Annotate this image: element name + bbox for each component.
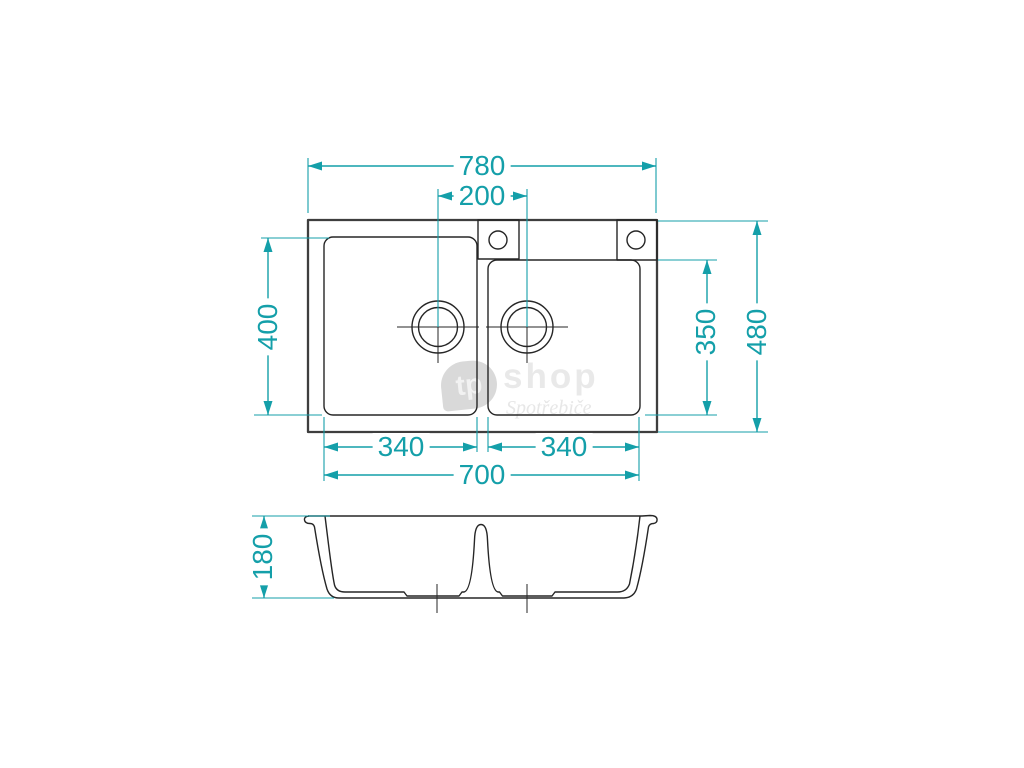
side-outer-profile [304,516,657,599]
arrow-350-top [703,260,712,274]
arrow-700-right [625,471,639,480]
arrow-340L-left [324,443,338,452]
dim-left-bowl-length: 400 [254,299,282,356]
arrow-180-bottom [260,584,269,598]
dim-overall-width: 780 [454,152,511,180]
arrow-340L-right [463,443,477,452]
arrow-340R-left [488,443,502,452]
arrow-480-top [753,221,762,235]
faucet-tab-left [478,220,519,259]
arrow-350-bottom [703,401,712,415]
dim-right-bowl-length: 350 [692,304,720,361]
dim-bowl-depth: 180 [249,529,277,586]
dim-right-bowl-width: 340 [536,433,593,461]
drawing-svg [0,0,1024,768]
dim-left-bowl-width: 340 [373,433,430,461]
sink-outline [308,220,657,432]
left-bowl [324,237,477,415]
arrow-200-left [438,192,452,201]
side-inner-profile [325,516,640,596]
dim-bowls-total-width: 700 [454,461,511,489]
arrow-340R-right [625,443,639,452]
sink-dimension-drawing: tp shop Spotřebiče [0,0,1024,768]
arrow-400-top [264,238,273,252]
faucet-hole-right [627,231,645,249]
arrow-200-right [513,192,527,201]
arrow-780-right [642,162,656,171]
dimension-lines [252,158,768,598]
arrow-480-bottom [753,418,762,432]
dim-overall-depth: 480 [743,304,771,361]
arrow-700-left [324,471,338,480]
arrow-400-bottom [264,401,273,415]
top-view [308,220,657,432]
dim-drain-spacing: 200 [454,182,511,210]
side-view [304,516,657,614]
arrow-780-left [308,162,322,171]
faucet-tab-right [617,220,657,260]
faucet-hole-left [489,231,507,249]
